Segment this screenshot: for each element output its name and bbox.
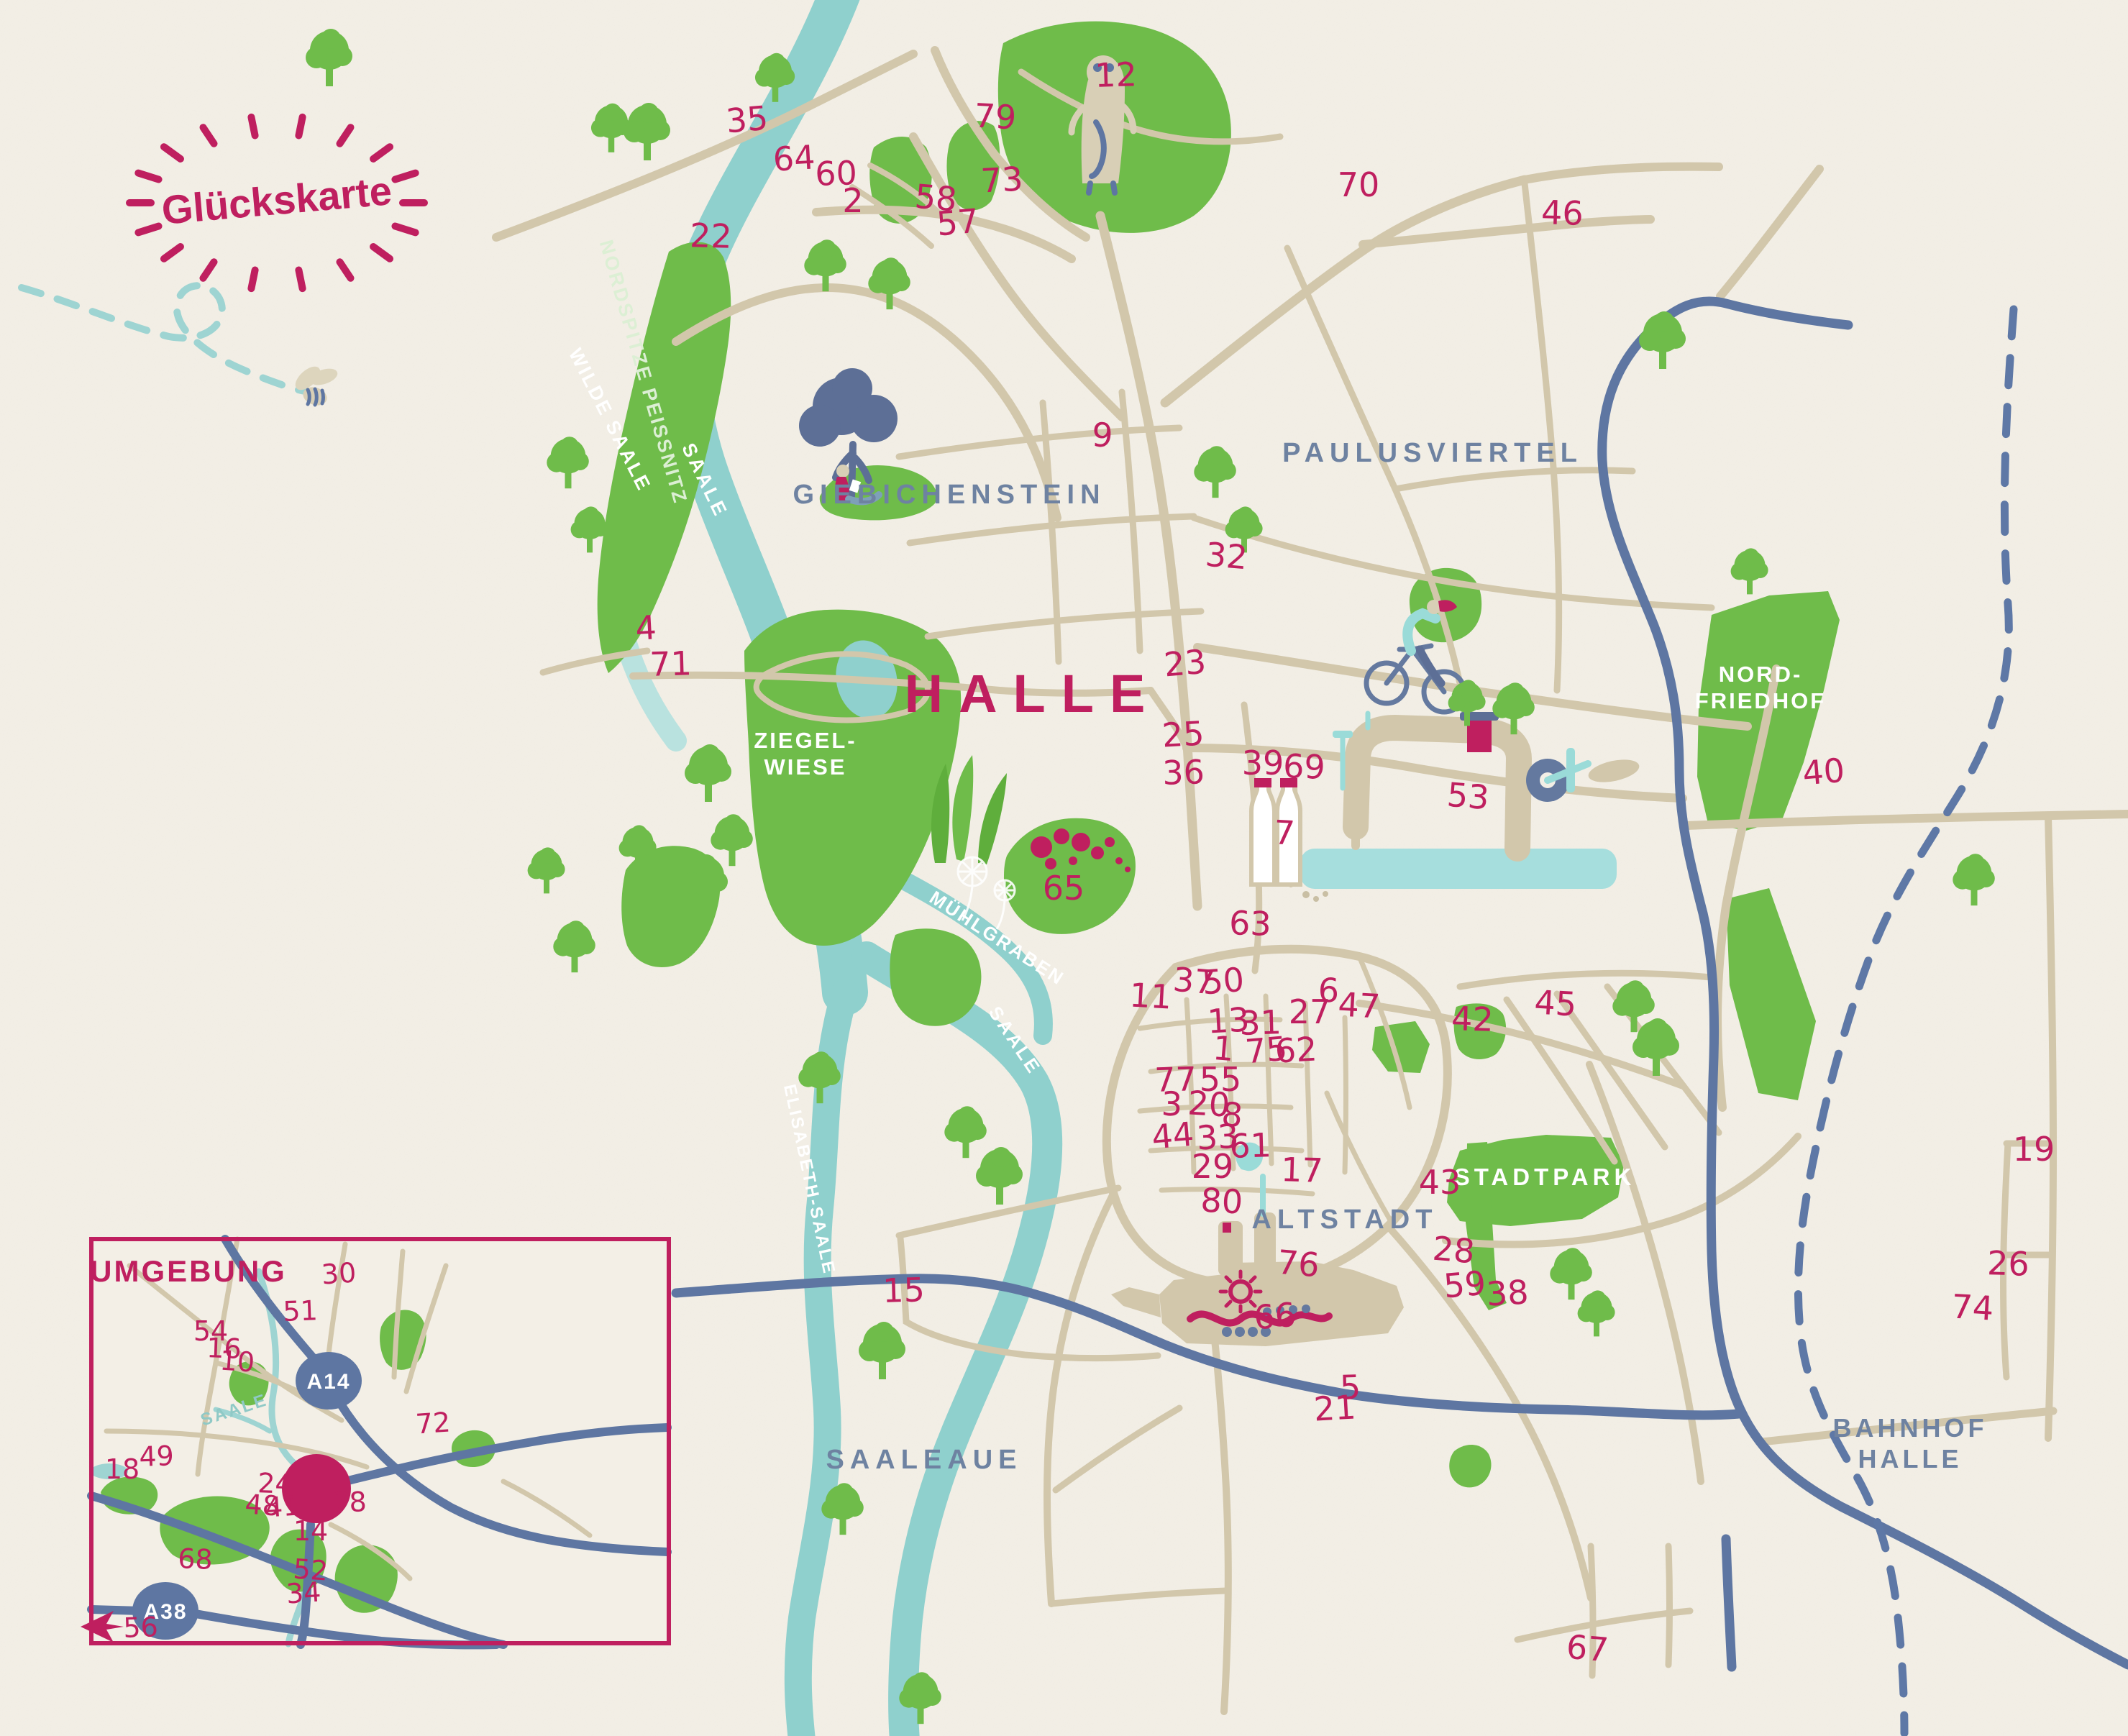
map-marker-15: 15 xyxy=(882,1270,926,1310)
map-marker-40: 40 xyxy=(1801,751,1846,793)
map-marker-32: 32 xyxy=(1204,535,1249,577)
inset-heading: UMGEBUNG xyxy=(90,1254,287,1288)
map-marker-2: 2 xyxy=(842,181,863,220)
inset-marker-49: 49 xyxy=(139,1440,175,1473)
map-marker-29: 29 xyxy=(1192,1147,1234,1186)
title-burst-dash xyxy=(298,117,302,136)
label-saaleaue: SAALEAUE xyxy=(826,1445,1022,1475)
inset-marker-34: 34 xyxy=(285,1576,321,1609)
map-marker-12: 12 xyxy=(1095,55,1138,95)
map-marker-67: 67 xyxy=(1565,1627,1610,1670)
map-marker-17: 17 xyxy=(1280,1150,1323,1190)
map-marker-64: 64 xyxy=(772,137,816,178)
map-marker-42: 42 xyxy=(1451,999,1494,1039)
blue-road-south-stub xyxy=(1726,1539,1732,1667)
map-marker-57: 57 xyxy=(935,201,980,244)
map-marker-71: 71 xyxy=(649,644,693,684)
inset-marker-72: 72 xyxy=(414,1406,451,1440)
park-muehlgraben-wedge xyxy=(890,928,981,1026)
map-marker-59: 59 xyxy=(1442,1264,1487,1306)
map-canvas: GIEBICHENSTEINPAULUSVIERTELHALLEALTSTADT… xyxy=(0,0,2128,1736)
label-altstadt: ALTSTADT xyxy=(1252,1205,1438,1235)
map-marker-79: 79 xyxy=(973,96,1017,137)
map-marker-22: 22 xyxy=(689,216,732,256)
title-burst-dash xyxy=(251,117,255,136)
map-marker-7: 7 xyxy=(1273,813,1296,853)
map-marker-66: 66 xyxy=(1252,1295,1297,1338)
map-marker-38: 38 xyxy=(1485,1272,1529,1313)
inset-map: A14A38 UMGEBUNGSAALE30515416107249182448… xyxy=(81,1239,669,1645)
map-marker-39: 39 xyxy=(1242,744,1284,782)
map-marker-23: 23 xyxy=(1162,642,1207,685)
map-marker-11: 11 xyxy=(1128,975,1172,1016)
map-marker-26: 26 xyxy=(1986,1243,2029,1284)
svg-text:A14: A14 xyxy=(306,1370,350,1394)
inset-marker-56: 56 xyxy=(123,1611,159,1644)
label-giebichenstein: GIEBICHENSTEIN xyxy=(793,480,1105,510)
map-marker-43: 43 xyxy=(1419,1163,1461,1202)
map-marker-73: 73 xyxy=(979,159,1023,200)
map-marker-61: 61 xyxy=(1229,1125,1272,1166)
inset-marker-10: 10 xyxy=(219,1344,255,1378)
map-marker-50: 50 xyxy=(1200,960,1246,1002)
inset-marker-68: 68 xyxy=(178,1543,214,1576)
map-marker-44: 44 xyxy=(1150,1115,1195,1157)
inset-marker-51: 51 xyxy=(283,1294,319,1328)
map-marker-53: 53 xyxy=(1446,775,1491,818)
map-marker-46: 46 xyxy=(1540,193,1584,233)
title-burst-dash xyxy=(251,270,255,289)
map-marker-35: 35 xyxy=(724,99,770,141)
map-marker-5: 5 xyxy=(1339,1368,1361,1407)
label-halle: HALLE xyxy=(905,664,1161,723)
map-marker-25: 25 xyxy=(1161,713,1205,754)
inset-marker-30: 30 xyxy=(320,1256,357,1290)
map-marker-19: 19 xyxy=(2013,1130,2055,1169)
map-marker-76: 76 xyxy=(1276,1243,1321,1285)
map-marker-45: 45 xyxy=(1533,982,1577,1023)
map-marker-47: 47 xyxy=(1337,985,1381,1025)
inset-marker-14: 14 xyxy=(293,1515,328,1547)
label-stadtpark: STADTPARK xyxy=(1454,1164,1636,1190)
label-paulusviertel: PAULUSVIERTEL xyxy=(1282,438,1583,468)
inset-marker-18: 18 xyxy=(105,1453,140,1485)
map-marker-80: 80 xyxy=(1200,1180,1243,1221)
map-marker-70: 70 xyxy=(1338,165,1380,204)
inset-marker-78: 78 xyxy=(332,1486,367,1519)
map-marker-36: 36 xyxy=(1162,752,1205,792)
gluckskarte-halle-map: GIEBICHENSTEINPAULUSVIERTELHALLEALTSTADT… xyxy=(0,0,2128,1736)
map-marker-74: 74 xyxy=(1950,1287,1994,1328)
map-marker-4: 4 xyxy=(634,608,657,648)
map-marker-6: 6 xyxy=(1318,971,1340,1010)
autobahn-badge-a14: A14 xyxy=(296,1352,362,1410)
title-burst-dash xyxy=(298,270,302,289)
map-marker-65: 65 xyxy=(1043,869,1085,908)
map-marker-63: 63 xyxy=(1228,903,1271,944)
map-marker-9: 9 xyxy=(1091,415,1114,455)
map-marker-62: 62 xyxy=(1274,1029,1318,1070)
map-marker-69: 69 xyxy=(1282,746,1325,787)
